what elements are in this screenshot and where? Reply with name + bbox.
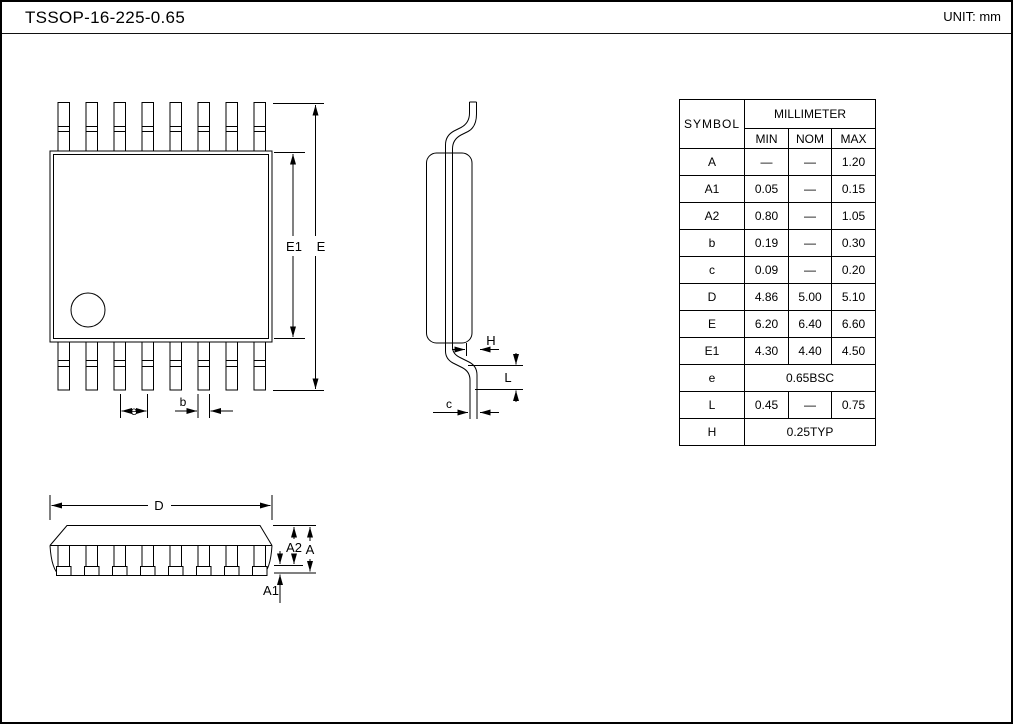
- cell-symbol: E1: [680, 338, 745, 365]
- dim-e: e: [121, 394, 148, 418]
- cell-min: 4.30: [745, 338, 789, 365]
- cell-min: 0.45: [745, 392, 789, 419]
- header-nom: NOM: [789, 129, 832, 149]
- dim-label-H: H: [486, 333, 495, 348]
- header-min: MIN: [745, 129, 789, 149]
- cell-symbol: c: [680, 257, 745, 284]
- dim-D: D: [50, 495, 272, 520]
- cell-span-value: 0.25TYP: [745, 419, 876, 446]
- dim-label-L: L: [504, 370, 511, 385]
- table-row: E1 4.30 4.40 4.50: [680, 338, 876, 365]
- cell-min: 6.20: [745, 311, 789, 338]
- front-body-top: [50, 526, 272, 546]
- dim-label-A1: A1: [263, 583, 279, 598]
- table-row: e 0.65BSC: [680, 365, 876, 392]
- dim-L: L: [468, 353, 523, 402]
- cell-min: 0.05: [745, 176, 789, 203]
- cell-max: 6.60: [832, 311, 876, 338]
- cell-symbol: A: [680, 149, 745, 176]
- dim-label-A2: A2: [286, 540, 302, 555]
- cell-span-value: 0.65BSC: [745, 365, 876, 392]
- cell-max: 1.05: [832, 203, 876, 230]
- front-view-leads: [57, 546, 268, 576]
- side-body-outline: [427, 153, 473, 343]
- table-row: A — — 1.20: [680, 149, 876, 176]
- cell-max: 1.20: [832, 149, 876, 176]
- cell-symbol: D: [680, 284, 745, 311]
- cell-symbol: b: [680, 230, 745, 257]
- top-view: E E1 e: [50, 103, 326, 419]
- dim-label-E: E: [317, 239, 326, 254]
- top-view-pins-top: [58, 103, 266, 152]
- top-view-pins-bottom: [58, 342, 266, 390]
- dim-E1: E1: [274, 153, 305, 339]
- cell-max: 0.20: [832, 257, 876, 284]
- dim-b: b: [175, 394, 233, 418]
- cell-max: 0.15: [832, 176, 876, 203]
- table-header-row: SYMBOL MILLIMETER: [680, 100, 876, 129]
- dim-label-e: e: [131, 404, 138, 418]
- cell-nom: —: [789, 176, 832, 203]
- table-row: D 4.86 5.00 5.10: [680, 284, 876, 311]
- cell-nom: 5.00: [789, 284, 832, 311]
- package-drawing-page: TSSOP-16-225-0.65 UNIT: mm: [0, 0, 1013, 724]
- cell-nom: —: [789, 257, 832, 284]
- cell-symbol: e: [680, 365, 745, 392]
- cell-nom: —: [789, 230, 832, 257]
- cell-symbol: A1: [680, 176, 745, 203]
- cell-max: 5.10: [832, 284, 876, 311]
- dim-c: c: [433, 397, 499, 413]
- cell-nom: —: [789, 149, 832, 176]
- front-view: D A2: [50, 495, 316, 603]
- header-millimeter: MILLIMETER: [745, 100, 876, 129]
- header-symbol: SYMBOL: [680, 100, 745, 149]
- cell-min: 0.09: [745, 257, 789, 284]
- table-row: A2 0.80 — 1.05: [680, 203, 876, 230]
- cell-symbol: E: [680, 311, 745, 338]
- cell-symbol: H: [680, 419, 745, 446]
- table-row: L 0.45 — 0.75: [680, 392, 876, 419]
- cell-min: 0.80: [745, 203, 789, 230]
- cell-min: 0.19: [745, 230, 789, 257]
- table-row: b 0.19 — 0.30: [680, 230, 876, 257]
- cell-max: 0.30: [832, 230, 876, 257]
- cell-nom: —: [789, 203, 832, 230]
- cell-nom: 4.40: [789, 338, 832, 365]
- cell-max: 4.50: [832, 338, 876, 365]
- table-row: A1 0.05 — 0.15: [680, 176, 876, 203]
- dimensions-table: SYMBOL MILLIMETER MIN NOM MAX A — — 1.20…: [679, 99, 876, 446]
- dim-label-D: D: [154, 498, 163, 513]
- cell-max: 0.75: [832, 392, 876, 419]
- table-row: c 0.09 — 0.20: [680, 257, 876, 284]
- cell-min: 4.86: [745, 284, 789, 311]
- header-max: MAX: [832, 129, 876, 149]
- table-row: E 6.20 6.40 6.60: [680, 311, 876, 338]
- dim-label-c: c: [446, 397, 452, 411]
- cell-min: —: [745, 149, 789, 176]
- cell-nom: —: [789, 392, 832, 419]
- cell-symbol: A2: [680, 203, 745, 230]
- dim-label-b: b: [180, 395, 187, 409]
- side-view: H L c: [427, 102, 524, 419]
- dim-label-E1: E1: [286, 239, 302, 254]
- cell-nom: 6.40: [789, 311, 832, 338]
- package-body-outline: [50, 151, 272, 342]
- cell-symbol: L: [680, 392, 745, 419]
- dim-label-A: A: [306, 542, 315, 557]
- table-row: H 0.25TYP: [680, 419, 876, 446]
